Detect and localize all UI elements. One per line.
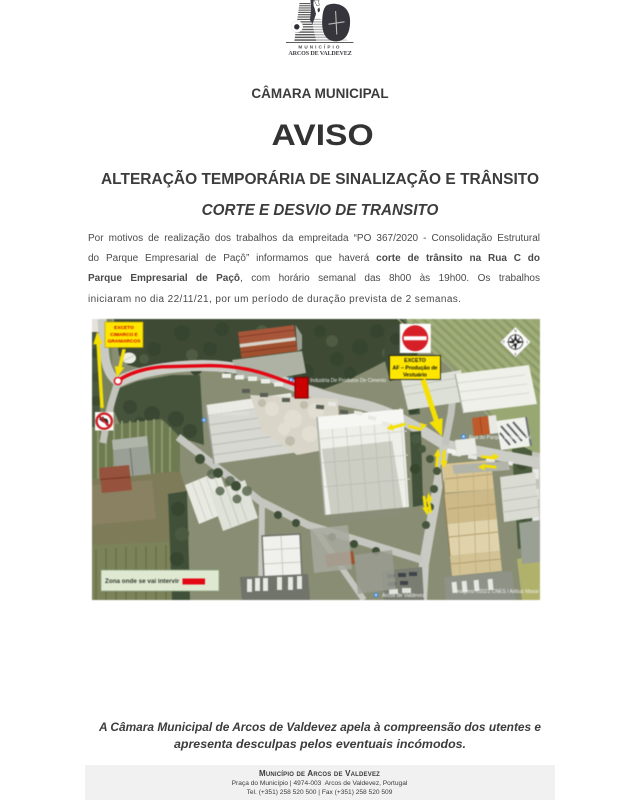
svg-text:AF – Produção de: AF – Produção de	[392, 366, 437, 372]
svg-text:MUNICÍPIO: MUNICÍPIO	[298, 42, 341, 49]
svg-text:Vestuário: Vestuário	[403, 372, 428, 378]
svg-text:Arcos de Valdevez: Arcos de Valdevez	[382, 593, 425, 599]
svg-text:Arcos Escavações: Arcos Escavações	[208, 411, 250, 417]
svg-text:Arcos Industria De Produtos De: Arcos Industria De Produtos De Cimento	[296, 378, 387, 384]
svg-text:EXCETO: EXCETO	[404, 358, 426, 364]
svg-text:L: L	[527, 340, 529, 344]
svg-text:CIMARCO E: CIMARCO E	[110, 332, 138, 338]
svg-text:Rua do Parque Empresarial: Rua do Parque Empresarial	[469, 435, 531, 441]
svg-text:GRANIARCOS: GRANIARCOS	[108, 339, 142, 345]
svg-text:S: S	[514, 353, 516, 357]
svg-text:ARCOS DE VALDEVEZ: ARCOS DE VALDEVEZ	[288, 51, 351, 57]
svg-text:EXCETO: EXCETO	[114, 325, 134, 331]
svg-text:Imagens ©2021 CNES / Airbus Ma: Imagens ©2021 CNES / Airbus Maxar	[455, 588, 539, 595]
svg-text:Zona onde se vai intervir: Zona onde se vai intervir	[105, 578, 180, 585]
